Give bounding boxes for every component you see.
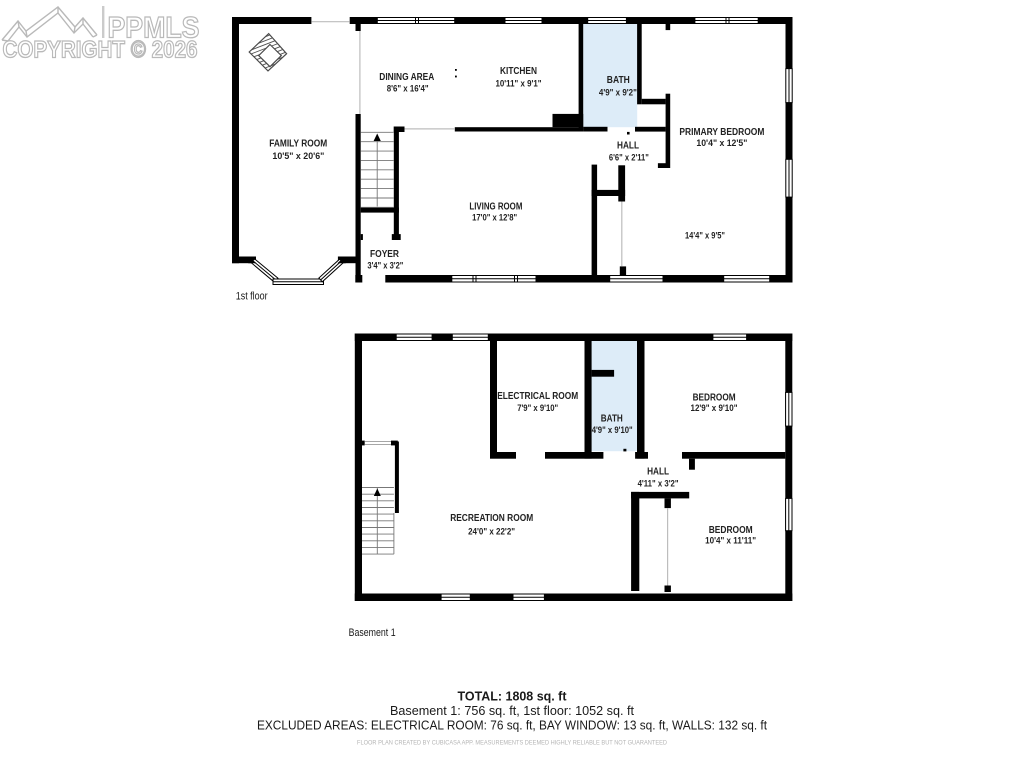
svg-text:10'5" x 20'6": 10'5" x 20'6" — [272, 151, 324, 161]
svg-text:4'9" x 9'2": 4'9" x 9'2" — [599, 88, 637, 98]
svg-text:7'9" x 9'10": 7'9" x 9'10" — [517, 403, 558, 413]
svg-text:RECREATION ROOM: RECREATION ROOM — [450, 513, 533, 524]
svg-text:KITCHEN: KITCHEN — [500, 66, 537, 77]
svg-text:EXCLUDED AREAS: ELECTRICAL ROO: EXCLUDED AREAS: ELECTRICAL ROOM: 76 sq. … — [257, 718, 767, 733]
svg-text:10'4" x 11'11": 10'4" x 11'11" — [705, 536, 756, 546]
svg-text:FLOOR PLAN CREATED BY CUBICASA: FLOOR PLAN CREATED BY CUBICASA APP. MEAS… — [357, 740, 667, 747]
svg-text:4'11" x 3'2": 4'11" x 3'2" — [638, 479, 679, 489]
svg-text:BEDROOM: BEDROOM — [693, 392, 736, 403]
svg-text:Basement 1: 756 sq. ft, 1st fl: Basement 1: 756 sq. ft, 1st floor: 1052 … — [390, 703, 634, 718]
svg-text:12'9" x 9'10": 12'9" x 9'10" — [691, 403, 738, 413]
svg-text:HALL: HALL — [647, 467, 669, 478]
svg-text:8'6" x 16'4": 8'6" x 16'4" — [387, 84, 429, 94]
svg-text:24'0" x 22'2": 24'0" x 22'2" — [468, 526, 515, 536]
svg-text:BEDROOM: BEDROOM — [709, 525, 753, 536]
svg-text:10'4" x 12'5": 10'4" x 12'5" — [696, 138, 747, 148]
svg-text:FOYER: FOYER — [370, 249, 400, 260]
svg-text:6'6" x 2'11": 6'6" x 2'11" — [609, 152, 649, 162]
svg-text:4'9" x 9'10": 4'9" x 9'10" — [592, 425, 633, 435]
svg-text:BATH: BATH — [607, 75, 630, 86]
svg-text:1st floor: 1st floor — [236, 291, 268, 303]
svg-text:14'4" x 9'5": 14'4" x 9'5" — [685, 231, 725, 241]
svg-text:FAMILY ROOM: FAMILY ROOM — [269, 138, 327, 149]
svg-text:ELECTRICAL ROOM: ELECTRICAL ROOM — [497, 391, 578, 402]
svg-text:HALL: HALL — [617, 141, 639, 152]
svg-text:DINING AREA: DINING AREA — [379, 72, 434, 83]
svg-text:PRIMARY BEDROOM: PRIMARY BEDROOM — [679, 127, 764, 138]
svg-text:TOTAL: 1808 sq. ft: TOTAL: 1808 sq. ft — [458, 689, 568, 704]
svg-text:BATH: BATH — [601, 414, 623, 425]
svg-text:Basement 1: Basement 1 — [349, 627, 396, 639]
svg-text:COPYRIGHT © 2026: COPYRIGHT © 2026 — [3, 37, 198, 64]
svg-text:3'4" x 3'2": 3'4" x 3'2" — [367, 260, 403, 270]
svg-text:17'0" x 12'8": 17'0" x 12'8" — [472, 213, 517, 223]
svg-text:10'11" x 9'1": 10'11" x 9'1" — [496, 78, 542, 88]
svg-text:LIVING ROOM: LIVING ROOM — [469, 201, 522, 212]
